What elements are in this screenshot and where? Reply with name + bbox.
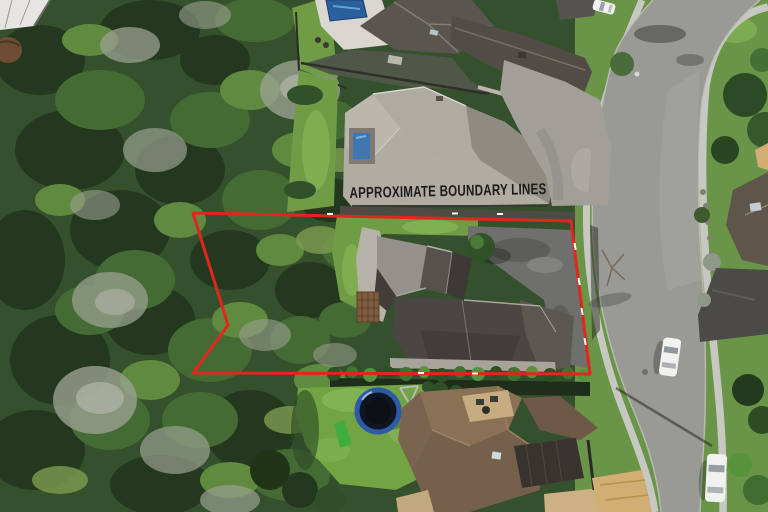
aerial-scene: APPROXIMATE BOUNDARY LINES	[0, 0, 768, 512]
aerial-property-photo: APPROXIMATE BOUNDARY LINES	[0, 0, 768, 512]
street	[575, 0, 768, 512]
swimming-pool	[326, 0, 367, 21]
skylight	[749, 202, 761, 211]
pergola	[357, 292, 379, 322]
driveway-crossing	[588, 138, 612, 206]
verge-tree	[610, 52, 634, 76]
